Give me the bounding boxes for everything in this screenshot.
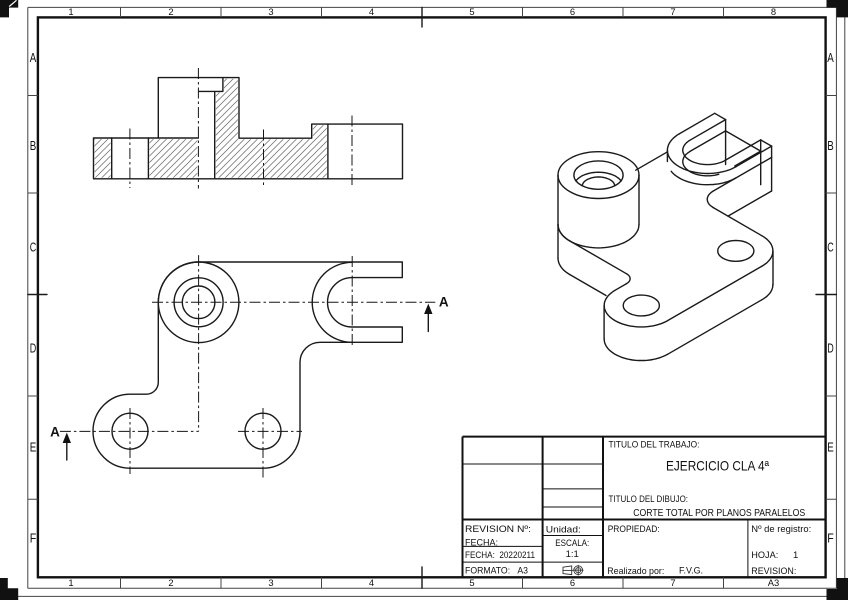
svg-text:3: 3 — [268, 577, 273, 588]
svg-text:Unidad:: Unidad: — [546, 525, 581, 536]
svg-text:1:1: 1:1 — [566, 549, 579, 560]
svg-text:3: 3 — [268, 6, 273, 17]
svg-text:5: 5 — [469, 6, 474, 17]
svg-text:Realizado por:: Realizado por: — [607, 566, 664, 577]
svg-text:C: C — [30, 240, 37, 255]
svg-text:HOJA:: HOJA: — [751, 550, 778, 561]
svg-text:F.V.G.: F.V.G. — [679, 565, 703, 576]
svg-text:4: 4 — [369, 6, 374, 17]
svg-text:6: 6 — [570, 6, 575, 17]
svg-text:1: 1 — [68, 577, 73, 588]
svg-text:B: B — [30, 138, 37, 153]
svg-text:6: 6 — [570, 577, 575, 588]
svg-text:C: C — [827, 240, 834, 255]
svg-text:A: A — [827, 50, 834, 65]
svg-text:A3: A3 — [768, 577, 779, 588]
svg-text:TITULO DEL DIBUJO:: TITULO DEL DIBUJO: — [609, 494, 689, 504]
svg-text:4: 4 — [369, 577, 374, 588]
svg-text:FORMATO: A3: FORMATO: A3 — [465, 566, 528, 577]
svg-text:Nº de registro:: Nº de registro: — [751, 524, 811, 535]
svg-text:1: 1 — [793, 550, 798, 561]
svg-text:D: D — [30, 341, 37, 356]
svg-text:8: 8 — [771, 6, 776, 17]
svg-text:F: F — [827, 531, 834, 546]
svg-text:2: 2 — [168, 577, 173, 588]
svg-text:A: A — [30, 50, 37, 65]
svg-text:FECHA: 20220211: FECHA: 20220211 — [465, 550, 535, 561]
svg-text:B: B — [827, 138, 834, 153]
svg-text:A: A — [50, 425, 60, 440]
svg-text:2: 2 — [168, 6, 173, 17]
svg-text:7: 7 — [670, 6, 675, 17]
svg-text:A: A — [439, 295, 449, 310]
svg-text:PROPIEDAD:: PROPIEDAD: — [608, 524, 660, 535]
svg-text:ESCALA:: ESCALA: — [555, 538, 589, 549]
svg-text:5: 5 — [469, 577, 474, 588]
svg-text:F: F — [30, 531, 37, 546]
svg-text:E: E — [827, 439, 834, 454]
svg-text:FECHA:: FECHA: — [465, 537, 498, 548]
svg-text:D: D — [827, 341, 834, 356]
svg-text:E: E — [30, 439, 37, 454]
svg-text:1: 1 — [68, 6, 73, 17]
svg-text:REVISION Nº:: REVISION Nº: — [465, 524, 531, 535]
svg-text:TITULO DEL TRABAJO:: TITULO DEL TRABAJO: — [609, 439, 700, 449]
svg-text:7: 7 — [670, 577, 675, 588]
svg-text:EJERCICIO CLA 4ª: EJERCICIO CLA 4ª — [666, 457, 770, 473]
svg-text:CORTE TOTAL POR PLANOS PARALEL: CORTE TOTAL POR PLANOS PARALELOS — [633, 507, 805, 519]
svg-text:REVISION:: REVISION: — [751, 566, 796, 577]
